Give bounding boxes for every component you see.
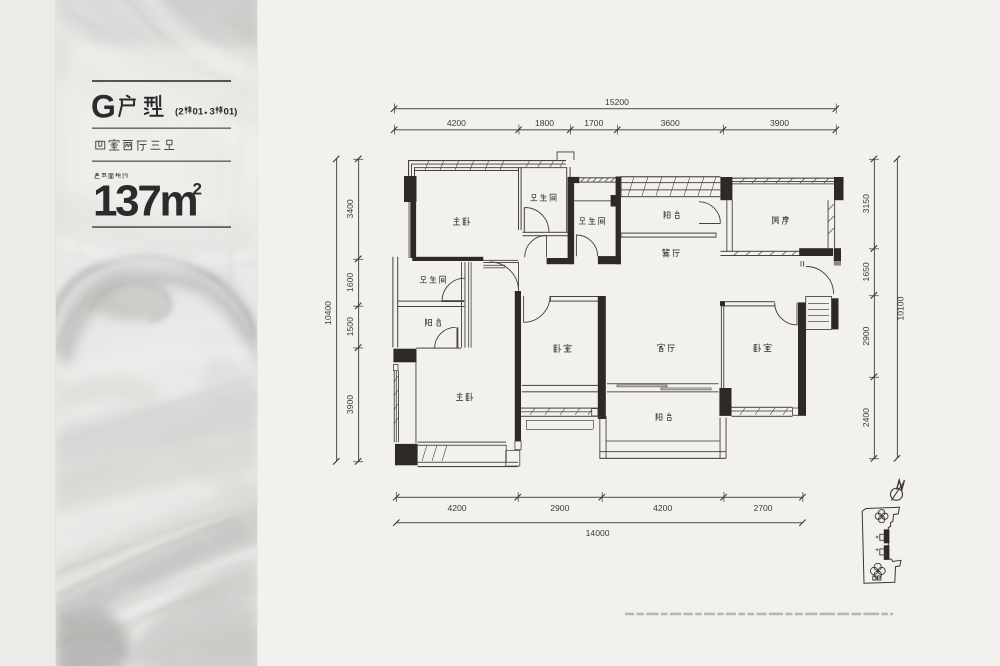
- svg-text:10100: 10100: [896, 296, 906, 320]
- svg-text:3: 3: [210, 107, 215, 118]
- svg-text:(2: (2: [175, 107, 184, 118]
- svg-text:1800: 1800: [535, 118, 554, 128]
- svg-text:1600: 1600: [345, 273, 355, 292]
- svg-text:1650: 1650: [861, 262, 871, 281]
- svg-text:4200: 4200: [653, 503, 672, 513]
- svg-text:3600: 3600: [661, 118, 680, 128]
- svg-text:10400: 10400: [323, 301, 333, 325]
- svg-text:14000: 14000: [586, 528, 610, 538]
- svg-text:G: G: [91, 89, 116, 125]
- svg-text:3150: 3150: [861, 194, 871, 213]
- svg-text:2700: 2700: [753, 503, 772, 513]
- svg-text:15200: 15200: [605, 97, 629, 107]
- svg-text:01): 01): [224, 107, 238, 118]
- svg-text:3400: 3400: [345, 199, 355, 218]
- svg-text:137m: 137m: [93, 177, 197, 226]
- svg-text:2400: 2400: [861, 408, 871, 427]
- svg-text:2: 2: [193, 180, 202, 199]
- svg-text:2900: 2900: [550, 503, 569, 513]
- svg-text:4200: 4200: [447, 118, 466, 128]
- svg-text:3900: 3900: [770, 118, 789, 128]
- svg-text:2900: 2900: [861, 326, 871, 345]
- svg-text:1500: 1500: [345, 317, 355, 336]
- svg-text:3900: 3900: [345, 395, 355, 414]
- svg-text:01: 01: [193, 107, 204, 118]
- svg-text:4200: 4200: [447, 503, 466, 513]
- svg-text:1700: 1700: [584, 118, 603, 128]
